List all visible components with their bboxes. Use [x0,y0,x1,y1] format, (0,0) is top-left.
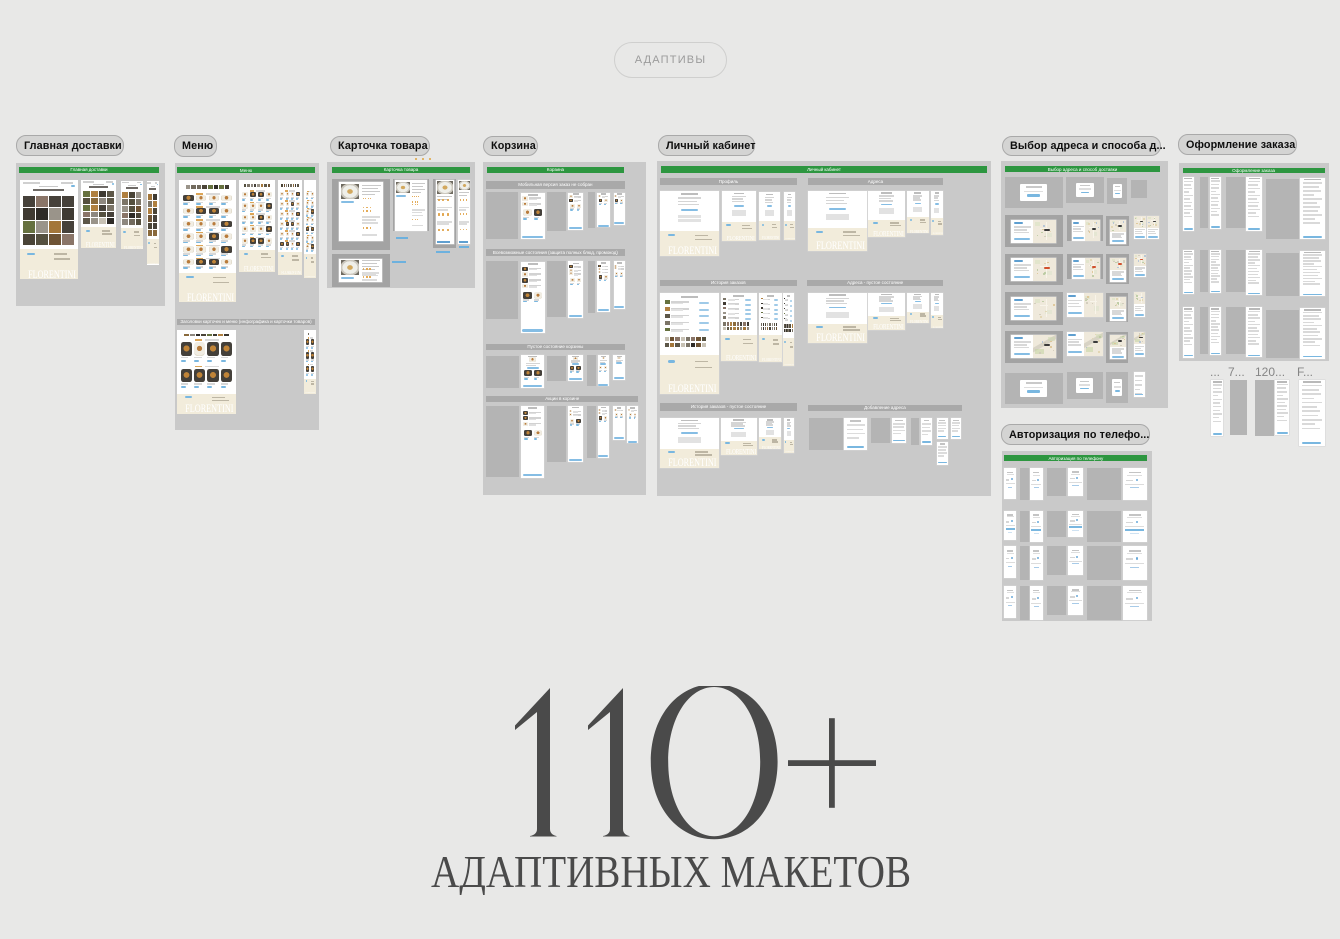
svg-text:АДАПТИВНЫХ МАКЕТОВ: АДАПТИВНЫХ МАКЕТОВ [431,846,911,895]
